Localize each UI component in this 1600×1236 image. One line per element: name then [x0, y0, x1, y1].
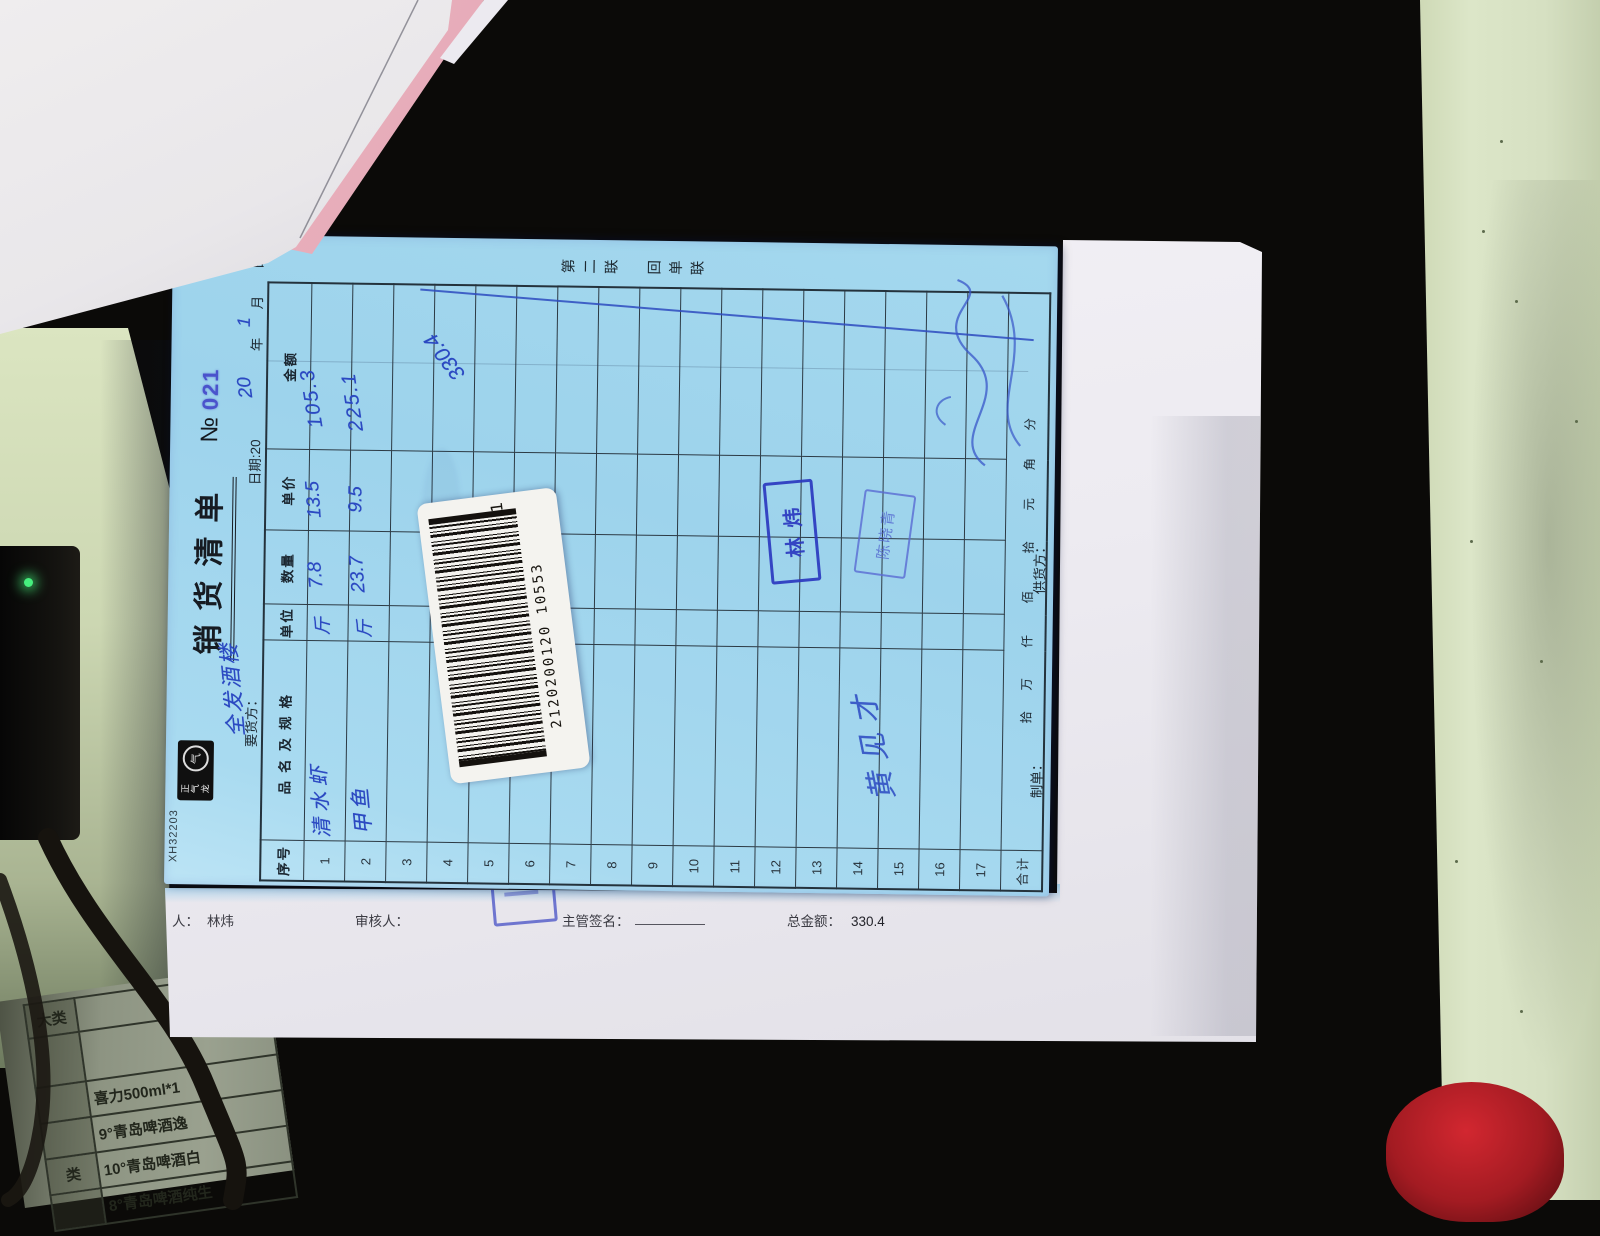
desk-mat-shadow: [1470, 180, 1600, 1080]
manager-sign-label: 主管签名：: [562, 910, 630, 930]
paper-crease: [1150, 416, 1260, 1036]
sales-list-form: XH32203 正气龙 气 销货清单 № 021 要货方： 全发酒楼 日期:20…: [164, 234, 1058, 896]
name-stamp-linwei: 林炜: [762, 479, 821, 585]
reviewer-label: 审核人：: [355, 910, 409, 930]
dark-device: [0, 546, 80, 840]
maker-line: 人：林炜: [172, 910, 234, 930]
pen-strokes: [164, 234, 1058, 896]
signature-blank-line: [635, 912, 705, 925]
total-amount-line: 总金额：330.4: [787, 910, 885, 930]
red-object-bottom-right: [1386, 1082, 1564, 1222]
green-led-light: [24, 578, 33, 587]
